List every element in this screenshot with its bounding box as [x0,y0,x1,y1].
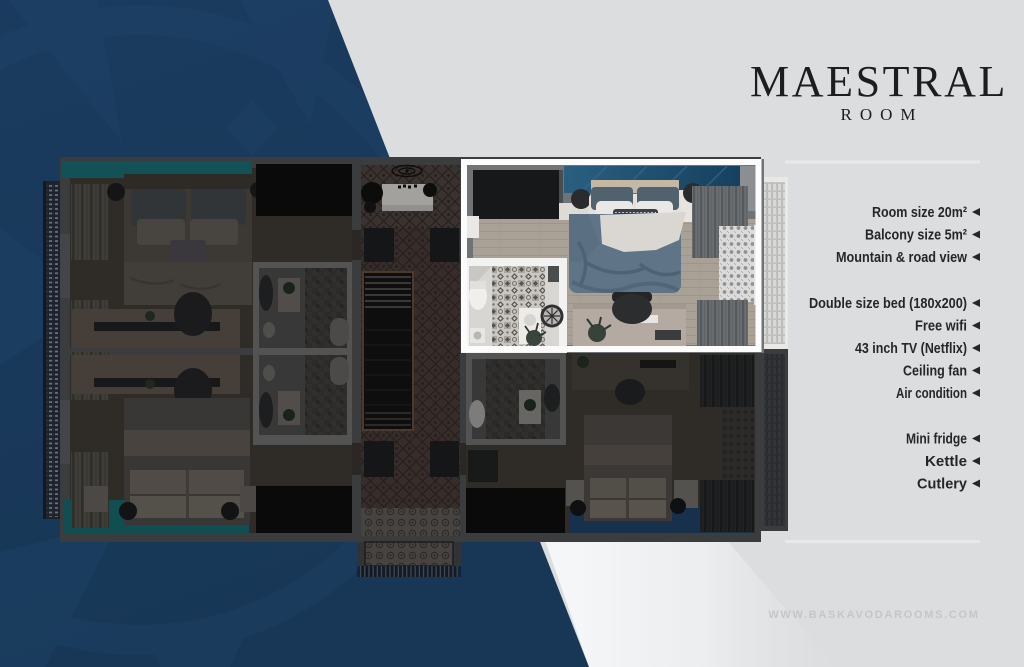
svg-text:Double size bed (180x200): Double size bed (180x200) [809,295,967,312]
svg-text:Balcony size 5m²: Balcony size 5m² [865,227,967,244]
svg-text:Air condition: Air condition [896,385,967,402]
svg-text:WWW.BASKAVODAROOMS.COM: WWW.BASKAVODAROOMS.COM [768,609,979,621]
svg-text:ROOM: ROOM [840,105,923,124]
svg-text:Room size 20m²: Room size 20m² [872,204,967,221]
svg-text:Free wifi: Free wifi [915,318,967,335]
svg-text:MAESTRAL: MAESTRAL [750,57,1008,106]
svg-text:43 inch TV (Netflix): 43 inch TV (Netflix) [855,340,967,357]
svg-text:Mini fridge: Mini fridge [906,431,967,448]
svg-text:Ceiling fan: Ceiling fan [903,363,967,380]
svg-text:Mountain & road view: Mountain & road view [836,249,967,266]
svg-text:Cutlery: Cutlery [917,476,968,493]
svg-text:Kettle: Kettle [925,453,967,470]
